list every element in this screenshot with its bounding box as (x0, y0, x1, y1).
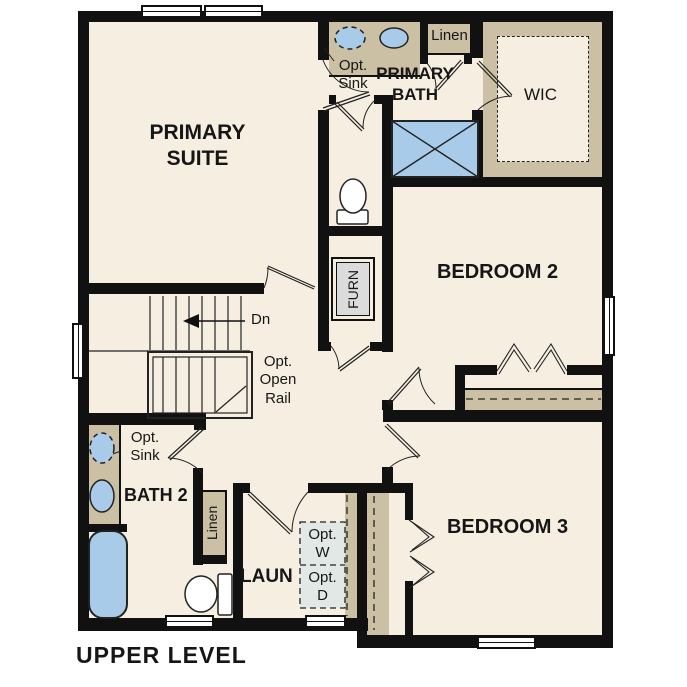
wall-linen-bottom-b (464, 55, 472, 64)
wall-wic-left-a (472, 11, 483, 58)
opt-washer-label: Opt. W (300, 526, 345, 563)
window-icon-bedroom3 (477, 636, 536, 649)
wall-laundry-top-a (243, 483, 250, 493)
wall-linen-lower-bottom (193, 555, 227, 564)
bedroom2-closet-shelf (465, 388, 602, 410)
window-icon-bath2 (165, 615, 214, 628)
wall-laundry-west (233, 483, 243, 623)
wall-closet2-top-a (455, 365, 497, 375)
wall-tub-top (78, 524, 127, 532)
laundry-counter (345, 493, 357, 618)
plan-title: UPPER LEVEL (76, 641, 247, 669)
wall-bath2-east (193, 468, 203, 565)
bath2-vanity (88, 423, 121, 524)
wic-label: WIC (524, 85, 557, 106)
bedroom2-label: BEDROOM 2 (395, 260, 600, 284)
wall-bath-south (382, 177, 612, 187)
furnace-inner: FURN (336, 262, 370, 316)
floor-plan-page: FURN PRIMARY SUITE PRIMARY BATH WIC Line… (0, 0, 687, 687)
wall-mid-right (382, 95, 393, 352)
window-icon-bedroom2 (603, 296, 615, 356)
linen-lower-label: Linen (204, 491, 226, 554)
wall-post-bedroom2-door (382, 400, 393, 410)
wall-mid-left-b (318, 110, 329, 351)
primary-suite-label: PRIMARY SUITE (110, 120, 285, 171)
wall-wc-bottom (329, 226, 382, 236)
wall-mid-left-a (318, 11, 329, 60)
wall-suite-south (78, 283, 264, 294)
wall-wic-left-b (472, 110, 483, 187)
wall-bedroom3-stub (382, 467, 393, 483)
wall-post-bath2-door (194, 413, 206, 430)
wall-closet2-top-b (567, 365, 602, 375)
furnace-label: FURN (345, 270, 361, 309)
wall-wc-top-a (329, 95, 336, 104)
wall-laundry-east (357, 483, 367, 635)
wall-closet3-east-b (405, 581, 413, 635)
floor-area-bedroom3 (368, 600, 602, 636)
opt-dryer-label: Opt. D (300, 569, 345, 606)
opt-sink-upper-label: Opt. Sink (328, 57, 378, 94)
bedroom3-label: BEDROOM 3 (405, 515, 610, 539)
window-icon-laundry (305, 615, 346, 628)
wall-furn-bottom-a (318, 342, 331, 351)
wall-exterior-left (78, 11, 89, 631)
laundry-label: LAUN (240, 565, 293, 588)
window-icon-suite-1 (141, 5, 202, 18)
bedroom3-closet-shelf (367, 493, 389, 635)
linen-upper-label: Linen (427, 27, 472, 45)
wall-bedroom-divider (383, 410, 612, 422)
wall-stair-south (78, 413, 205, 425)
wall-linen-bottom-a (420, 55, 428, 64)
window-icon-suite-2 (204, 5, 263, 18)
bath2-label: BATH 2 (124, 485, 188, 507)
window-icon-stair-left (72, 323, 84, 379)
furnace-unit: FURN (331, 257, 375, 321)
stairs-down-label: Dn (251, 311, 270, 329)
opt-sink-bath2-label: Opt. Sink (120, 429, 170, 466)
wall-linen-left (420, 22, 426, 55)
opt-open-rail-label: Opt. Open Rail (245, 353, 311, 408)
